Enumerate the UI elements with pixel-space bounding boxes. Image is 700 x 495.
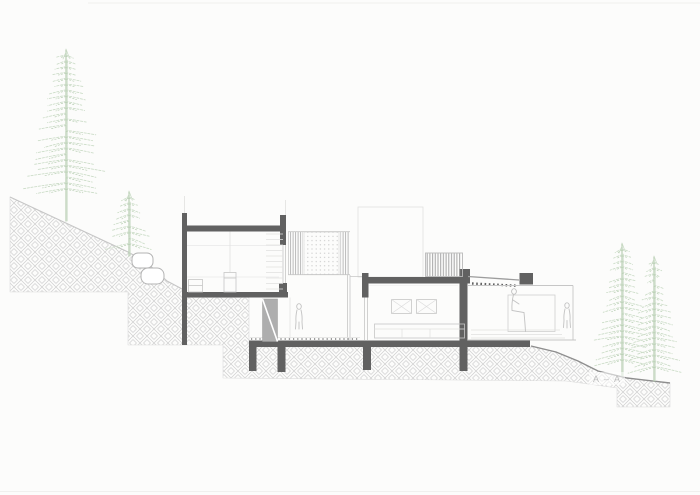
sofa-unit	[375, 324, 465, 338]
middle-volume	[290, 269, 470, 347]
furniture-living-room	[375, 300, 465, 339]
cut-wall-right-head	[280, 215, 286, 245]
cut-roof-slab-low	[362, 277, 470, 284]
cut-ground-slab	[249, 341, 530, 348]
opening-outline	[508, 295, 555, 332]
wall-art-cross	[417, 300, 437, 314]
glass-line-left-bay	[365, 298, 368, 341]
cut-wall-left	[182, 213, 187, 345]
stove	[224, 273, 236, 293]
terrain	[10, 197, 670, 407]
window-glazing-lines	[283, 245, 286, 283]
person-standing-terrace	[564, 303, 571, 328]
furniture-upper-room	[189, 232, 284, 293]
foundation-column	[460, 347, 468, 371]
stair	[263, 299, 278, 342]
roof-railing	[426, 253, 463, 277]
wall-art-cross	[392, 300, 412, 314]
foundation-column	[249, 347, 257, 371]
pergola-beam	[468, 277, 519, 281]
section-label: A – A	[593, 374, 622, 384]
pine-tree	[23, 49, 104, 221]
boulder	[141, 268, 164, 284]
person-standing-hall	[296, 304, 303, 329]
cut-upstand-left	[362, 273, 369, 298]
pergola-end-block	[520, 273, 534, 285]
section-drawing-canvas: A – A	[0, 0, 700, 495]
cut-sill-stub	[279, 283, 287, 298]
sofa-lines	[375, 329, 465, 338]
parapet-faint-lines	[185, 196, 286, 215]
louver-screen	[288, 232, 362, 277]
cut-wall-right	[460, 283, 468, 347]
foundation-column	[363, 347, 371, 370]
boulder	[132, 253, 153, 268]
earth-mass	[10, 197, 670, 407]
louver-panel-left	[288, 232, 303, 275]
trees	[23, 49, 681, 381]
louver-panel-right	[341, 232, 351, 275]
drawing-sheet: A – A	[0, 0, 700, 495]
railing-slats	[427, 254, 462, 277]
pergola	[468, 273, 533, 286]
perforated-panel	[304, 232, 339, 275]
pine-tree	[593, 243, 646, 376]
cut-roof-slab	[182, 226, 286, 232]
foundation-column	[278, 347, 286, 372]
right-elevation	[468, 286, 576, 341]
glass-line-middle-bay	[348, 275, 351, 340]
background-volume-outline	[358, 207, 423, 277]
cut-floor-slab	[182, 292, 288, 298]
